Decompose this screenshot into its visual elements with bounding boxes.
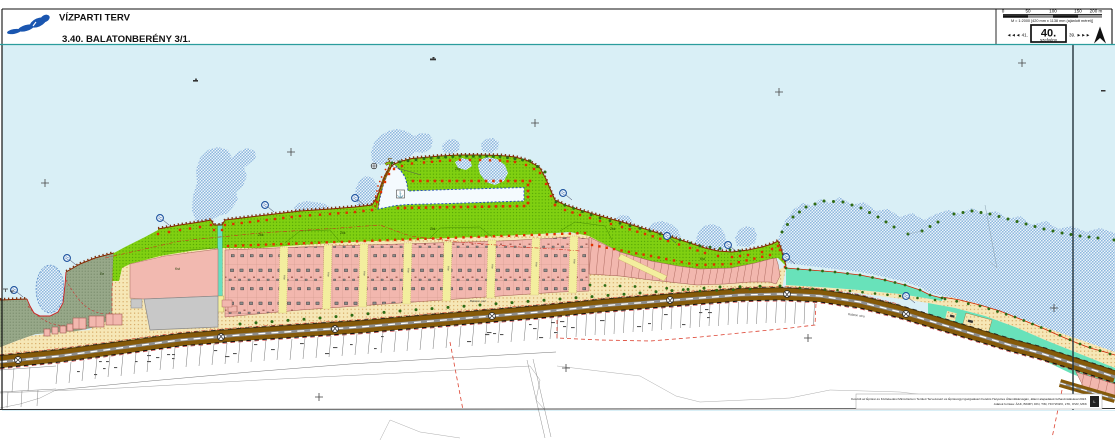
svg-text:39. ►►►: 39. ►►►	[1069, 33, 1090, 38]
svg-text:Ee: Ee	[100, 272, 104, 276]
svg-text:Zkk: Zkk	[610, 227, 616, 231]
svg-text:utca: utca	[406, 267, 410, 273]
svg-text:Adatok forrása: ÁAK, BKMH, DIN: Adatok forrása: ÁAK, BKMH, DIN, TIM, HOY…	[994, 402, 1088, 406]
svg-text:szelvény: szelvény	[1040, 37, 1058, 42]
svg-text:Kst: Kst	[175, 267, 180, 271]
svg-text:100: 100	[1049, 9, 1057, 14]
svg-text:Zkk: Zkk	[258, 233, 264, 237]
svg-text:50: 50	[1025, 9, 1031, 14]
svg-text:utca: utca	[490, 263, 494, 269]
svg-text:3.40. BALATONBERÉNY 3/1.: 3.40. BALATONBERÉNY 3/1.	[62, 33, 191, 45]
svg-text:Zkk: Zkk	[430, 227, 436, 231]
svg-text:utca: utca	[326, 271, 330, 277]
svg-text:150: 150	[1074, 9, 1082, 14]
svg-text:Készült az Építési és Közleked: Készült az Építési és Közlekedési Minisz…	[851, 396, 1087, 401]
svg-text:Zkk: Zkk	[340, 231, 346, 235]
svg-text:⚓: ⚓	[397, 191, 404, 199]
svg-text:utca: utca	[572, 258, 576, 264]
svg-text:utca: utca	[534, 261, 538, 267]
svg-text:utca: utca	[446, 265, 450, 271]
svg-text:Balaton part: Balaton part	[470, 299, 486, 303]
svg-text:VÍZPARTI TERV: VÍZPARTI TERV	[59, 12, 131, 24]
svg-text:◄◄◄ 41.: ◄◄◄ 41.	[1007, 33, 1028, 38]
svg-text:utca: utca	[282, 274, 286, 280]
svg-text:M = 1:2000 [420 mm x 1138 mm: M = 1:2000 [420 mm x 1138 mm (ajánlott m…	[1011, 19, 1093, 23]
svg-text:utca: utca	[362, 270, 366, 276]
svg-text:Kst: Kst	[700, 257, 705, 261]
svg-text:0: 0	[1002, 9, 1005, 14]
svg-text:200 m: 200 m	[1090, 9, 1103, 14]
svg-text:Zkp: Zkp	[455, 167, 461, 171]
